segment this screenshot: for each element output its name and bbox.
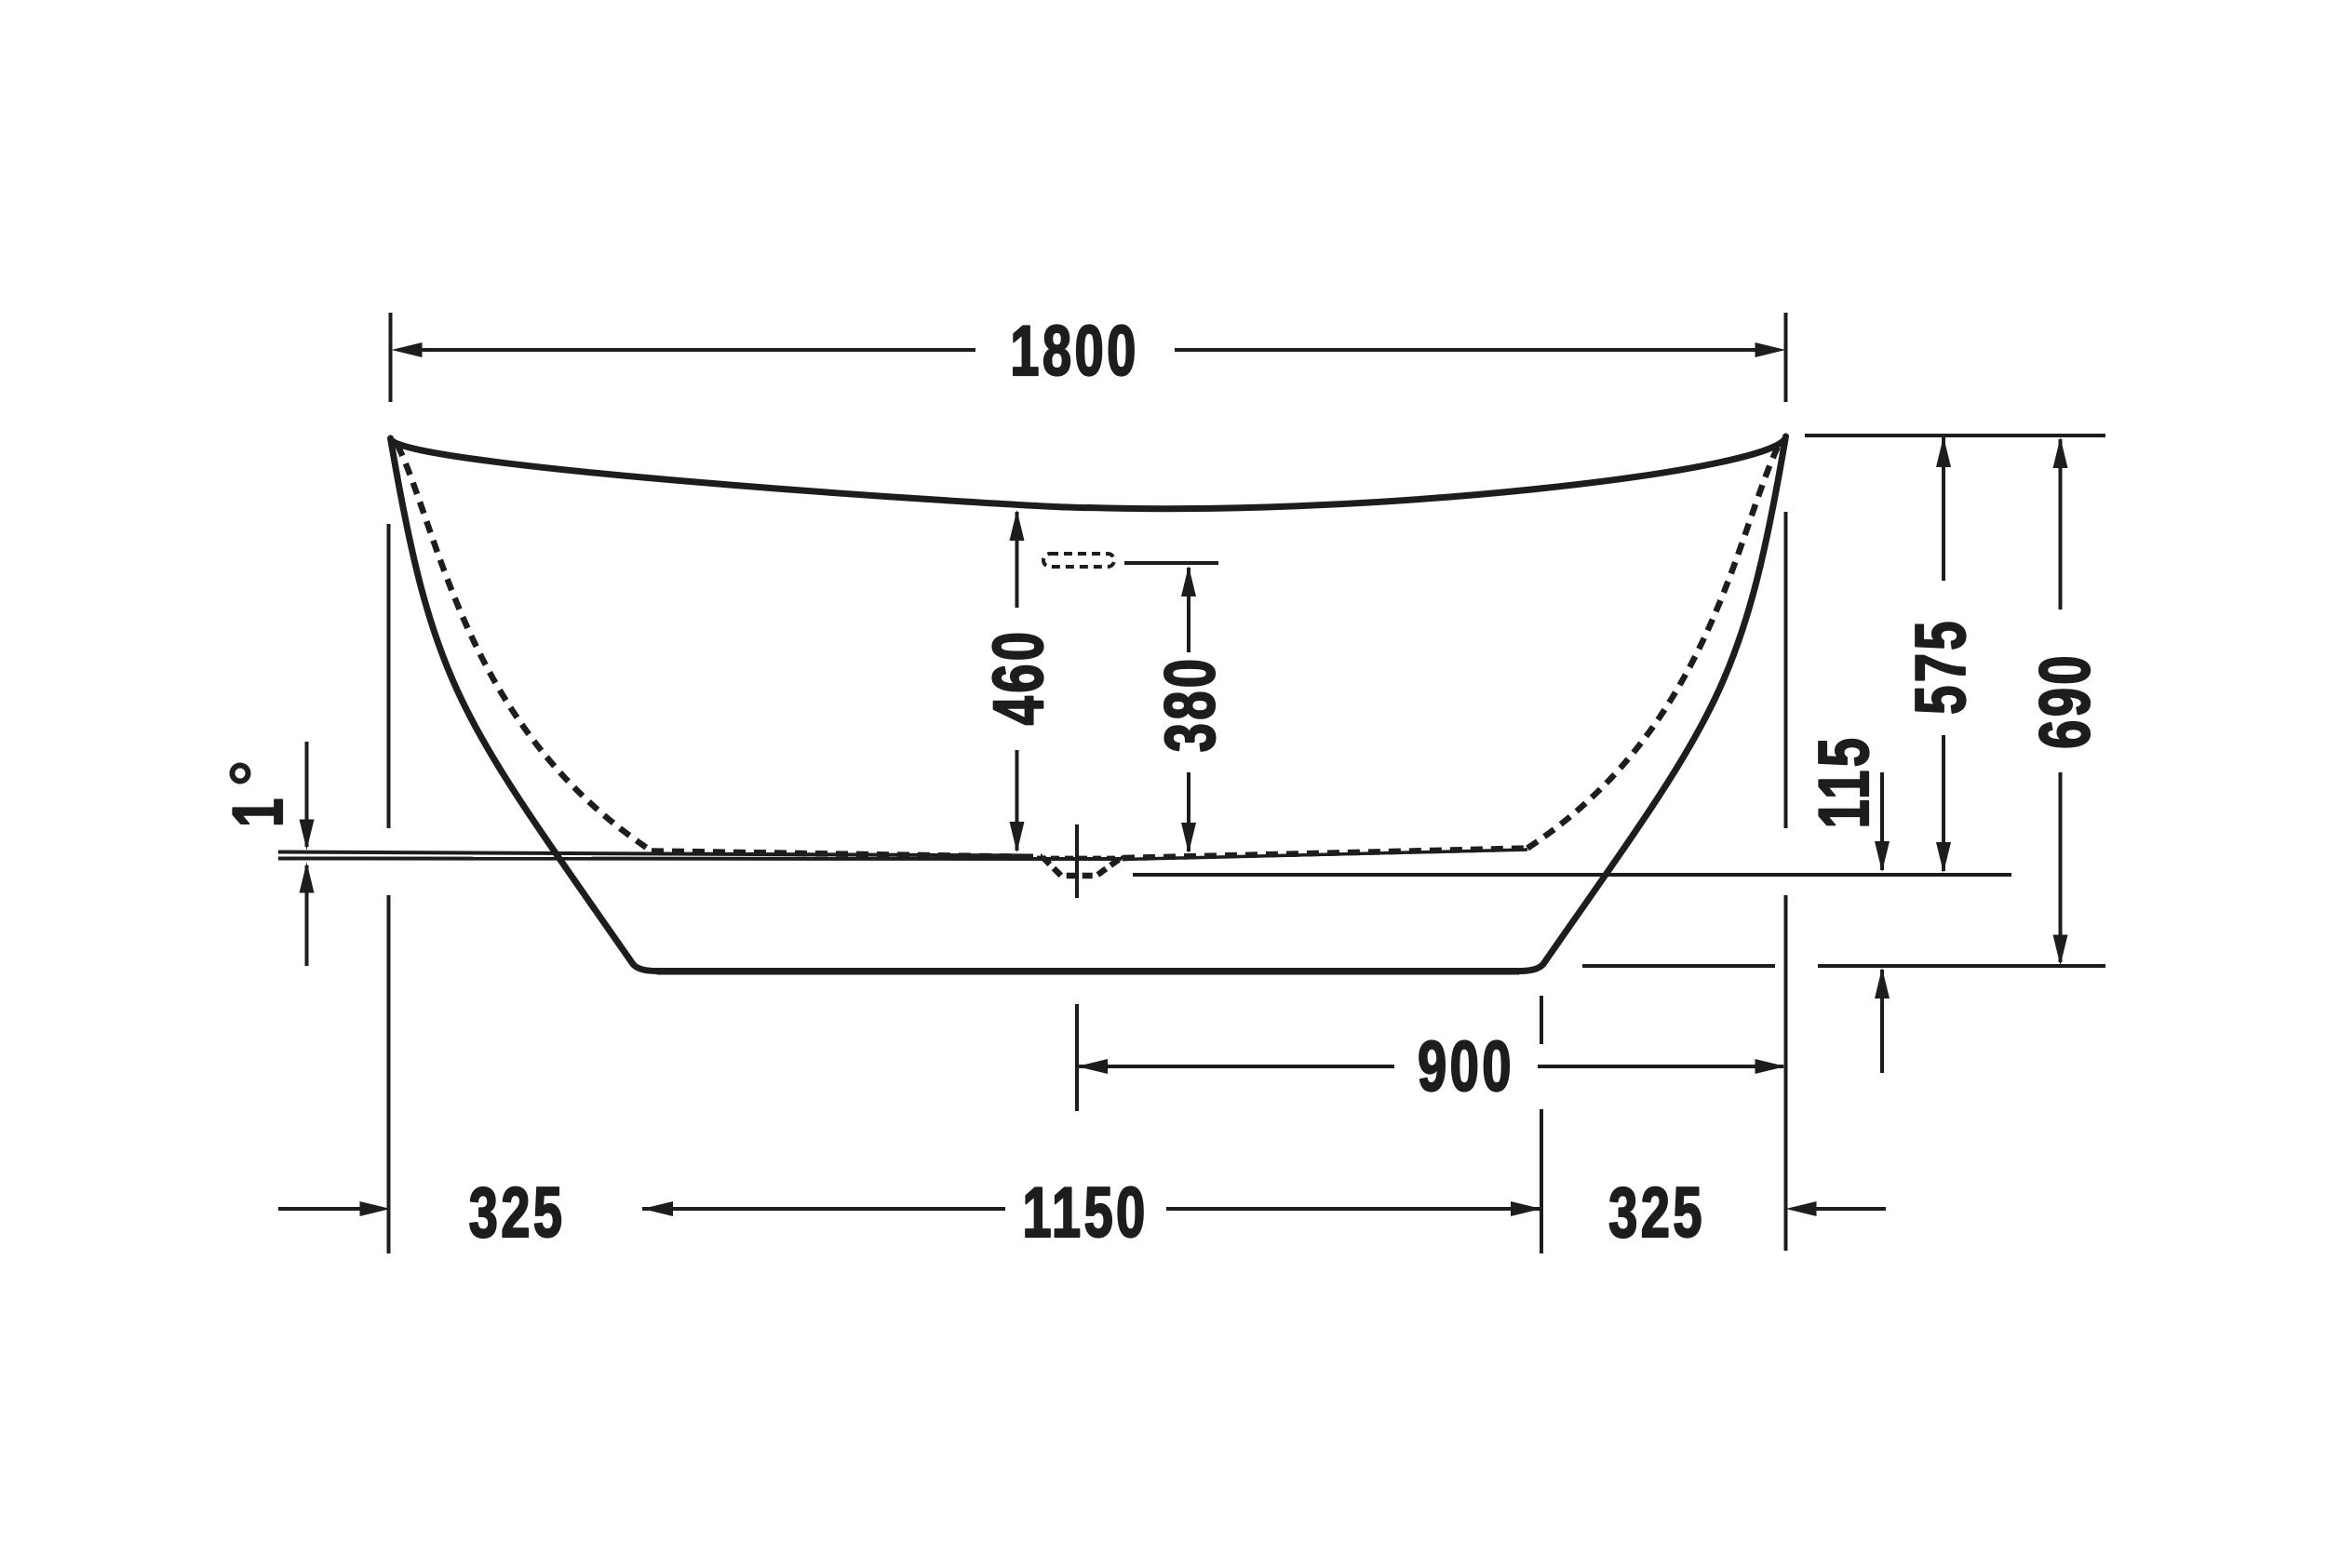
svg-text:575: 575 bbox=[1902, 618, 1981, 715]
svg-text:1800: 1800 bbox=[1010, 312, 1138, 391]
svg-text:325: 325 bbox=[1608, 1173, 1705, 1253]
svg-text:1150: 1150 bbox=[1022, 1173, 1148, 1253]
svg-text:690: 690 bbox=[2025, 652, 2105, 749]
svg-text:460: 460 bbox=[979, 629, 1058, 726]
svg-text:380: 380 bbox=[1150, 656, 1230, 753]
svg-text:900: 900 bbox=[1418, 1027, 1514, 1106]
svg-text:115: 115 bbox=[1805, 735, 1884, 829]
svg-text:1: 1 bbox=[219, 795, 298, 827]
svg-text:325: 325 bbox=[469, 1173, 566, 1253]
